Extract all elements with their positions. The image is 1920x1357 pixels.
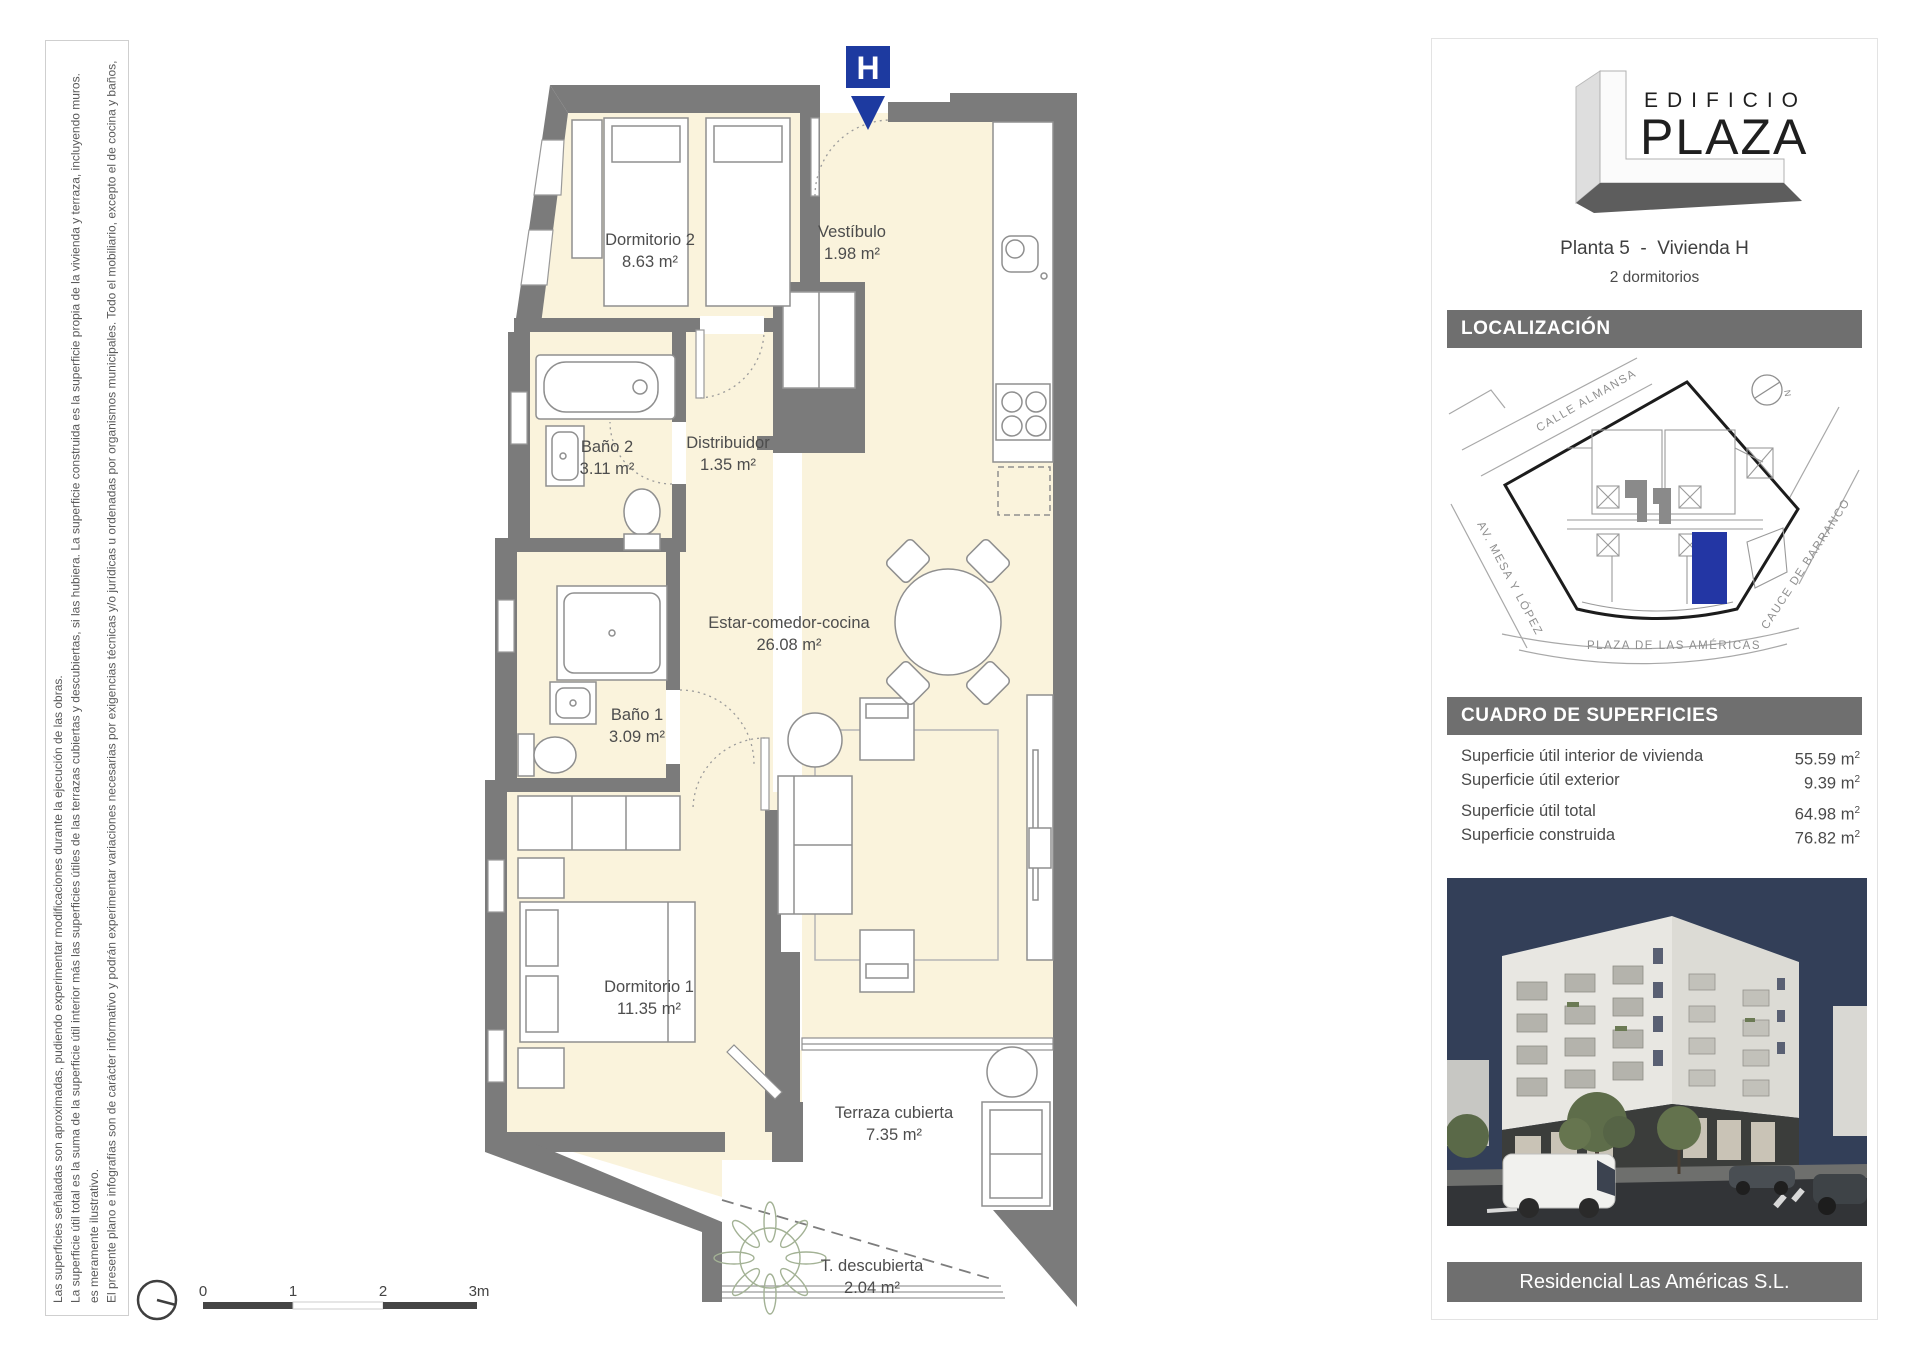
- label-dormitorio2: Dormitorio 2: [605, 231, 695, 249]
- bano1-door-gap: [666, 690, 680, 764]
- scale-segment-light: [293, 1302, 383, 1309]
- area-dormitorio2: 8.63 m²: [622, 253, 678, 271]
- row-label: Superficie útil total: [1461, 799, 1596, 823]
- nightstand-dorm1-top: [518, 858, 564, 898]
- north-compass-icon: [138, 1281, 176, 1319]
- label-distribuidor: Distribuidor: [686, 434, 770, 452]
- localizacion-header: LOCALIZACIÓN: [1447, 310, 1862, 348]
- scale-bar: 0 1 2 3m: [133, 1270, 513, 1330]
- logo-bracket-side: [1576, 71, 1600, 203]
- render-van: [1503, 1154, 1615, 1218]
- area-terraza: 7.35 m²: [866, 1126, 922, 1144]
- superficies-header: CUADRO DE SUPERFICIES: [1447, 697, 1862, 735]
- wall-right: [1053, 122, 1077, 850]
- row-label: Superficie útil exterior: [1461, 768, 1620, 792]
- table-row: Superficie útil total 64.98 m2: [1447, 799, 1862, 823]
- row-label: Superficie útil interior de vivienda: [1461, 744, 1703, 768]
- dorm1-door-leaf: [761, 738, 769, 810]
- title-block: Planta 5 - Vivienda H 2 dormitorios: [1447, 238, 1862, 287]
- building-render: [1447, 878, 1867, 1226]
- page-subtitle: 2 dormitorios: [1447, 269, 1862, 287]
- label-dormitorio1: Dormitorio 1: [604, 978, 694, 996]
- wall-bano1-left: [495, 552, 517, 792]
- sink-bano2: [546, 426, 584, 486]
- label-estar: Estar-comedor-cocina: [708, 614, 870, 632]
- side-table: [788, 713, 842, 767]
- armchair-top: [860, 698, 914, 760]
- dorm2-door-leaf: [696, 330, 704, 398]
- row-label: Superficie construida: [1461, 823, 1615, 847]
- logo-bracket-shadow: [1576, 183, 1802, 213]
- window-dorm1-b: [488, 1030, 504, 1082]
- row-value: 76.82 m2: [1795, 823, 1860, 847]
- wardrobe-dorm1: [518, 796, 680, 850]
- area-estar: 26.08 m²: [756, 636, 822, 654]
- label-bano2: Baño 2: [581, 438, 633, 456]
- floor-plan: H Dormitorio 2 8.63 m² Vestíbulo 1.98 m²…: [400, 40, 1120, 1330]
- entry-door-leaf: [811, 118, 819, 196]
- area-vestibulo: 1.98 m²: [824, 245, 880, 263]
- area-bano2: 3.11 m²: [580, 460, 635, 478]
- table-row: Superficie construida 76.82 m2: [1447, 823, 1862, 847]
- superficies-table: Superficie útil interior de vivienda 55.…: [1447, 744, 1862, 847]
- wall-top-right-a: [888, 102, 950, 122]
- page-title: Planta 5 - Vivienda H: [1447, 238, 1862, 260]
- bano2-door-gap: [672, 422, 686, 484]
- terrace-sofa: [982, 1102, 1050, 1206]
- toilet-bano1: [518, 734, 576, 776]
- shower-bano1: [557, 586, 667, 680]
- window-bano2: [511, 392, 527, 444]
- wall-bano1-bottom: [495, 778, 680, 792]
- disclaimer-paragraph-2: La superficie útil total es la suma de l…: [50, 53, 85, 1303]
- area-distribuidor: 1.35 m²: [700, 456, 756, 474]
- armchair-bottom: [860, 930, 914, 992]
- window-dorm2-a: [534, 140, 564, 195]
- scale-labels: 0 1 2 3m: [199, 1283, 490, 1300]
- bed-dorm2-right: [706, 118, 790, 306]
- area-dormitorio1: 11.35 m²: [617, 1000, 681, 1018]
- label-terraza: Terraza cubierta: [835, 1104, 954, 1122]
- terrace-table: [987, 1047, 1037, 1097]
- tv-unit: [1027, 695, 1053, 960]
- label-vestibulo: Vestíbulo: [818, 223, 886, 241]
- wall-dorm1-left: [485, 780, 507, 1152]
- kitchen-counter: [993, 122, 1053, 462]
- disclaimer-text: El presente plano e infografías son de c…: [46, 41, 128, 1315]
- wall-bano2-right-b: [672, 484, 686, 538]
- scale-segment-dark-1: [203, 1302, 293, 1309]
- plan-sheet: El presente plano e infografías son de c…: [0, 0, 1920, 1357]
- north-letter: N: [1782, 389, 1793, 397]
- wall-top-left: [550, 85, 820, 113]
- scale-segment-dark-2: [383, 1302, 477, 1309]
- bathtub-bano2: [536, 355, 675, 419]
- row-value: 9.39 m2: [1804, 768, 1860, 792]
- logo-line2: PLAZA: [1640, 109, 1808, 165]
- table-row: Superficie útil exterior 9.39 m2: [1447, 768, 1862, 792]
- scale-3m: 3m: [469, 1283, 490, 1300]
- terrace-plant: [714, 1202, 826, 1314]
- disclaimer-paragraph-1: El presente plano e infografías son de c…: [86, 53, 121, 1303]
- render-neighbor-right: [1833, 1006, 1867, 1136]
- window-bano1: [498, 600, 514, 652]
- table-row: Superficie útil interior de vivienda 55.…: [1447, 744, 1862, 768]
- developer-footer: Residencial Las Américas S.L.: [1447, 1262, 1862, 1302]
- bed-dorm2-left: [604, 118, 688, 306]
- wall-right-terrace: [1053, 850, 1077, 1210]
- north-indicator: N: [1752, 375, 1793, 405]
- scale-0: 0: [199, 1283, 207, 1300]
- nightstand-dorm1-bottom: [518, 1048, 564, 1088]
- wall-bano1-right-b: [666, 764, 680, 792]
- scale-1: 1: [289, 1283, 297, 1300]
- street-plaza-americas: PLAZA DE LAS AMÉRICAS: [1587, 639, 1761, 652]
- window-dorm2-b: [521, 230, 553, 285]
- label-descubierta: T. descubierta: [821, 1257, 925, 1275]
- sofa-living: [778, 776, 852, 914]
- wall-top-right-b: [950, 93, 1077, 122]
- bed-dorm1: [520, 902, 695, 1042]
- label-bano1: Baño 1: [611, 706, 663, 724]
- scale-2: 2: [379, 1283, 387, 1300]
- sink-bano1: [550, 682, 596, 724]
- wall-step-terrace: [772, 1102, 803, 1162]
- row-value: 55.59 m2: [1795, 744, 1860, 768]
- wall-bano1-right-a: [666, 552, 680, 690]
- wall-partition-low: [778, 952, 800, 1102]
- toilet-bano2: [624, 489, 660, 550]
- unit-marker-letter: H: [856, 50, 879, 86]
- wall-foot-diagonal: [993, 1210, 1077, 1307]
- wardrobe-dorm2: [572, 120, 602, 258]
- window-dorm1-a: [488, 860, 504, 912]
- area-bano1: 3.09 m²: [609, 728, 665, 746]
- floor-corridor: [680, 332, 773, 812]
- highlighted-unit: [1692, 532, 1727, 604]
- area-descubierta: 2.04 m²: [844, 1279, 900, 1297]
- location-map: N CALLE ALMANSA AV. MESA Y LÓPEZ CAUCE D…: [1447, 352, 1862, 670]
- logo: EDIFICIO PLAZA: [1548, 55, 1818, 225]
- disclaimer-box: El presente plano e infografías son de c…: [45, 40, 129, 1316]
- row-value: 64.98 m2: [1795, 799, 1860, 823]
- dorm2-door-gap: [700, 316, 764, 334]
